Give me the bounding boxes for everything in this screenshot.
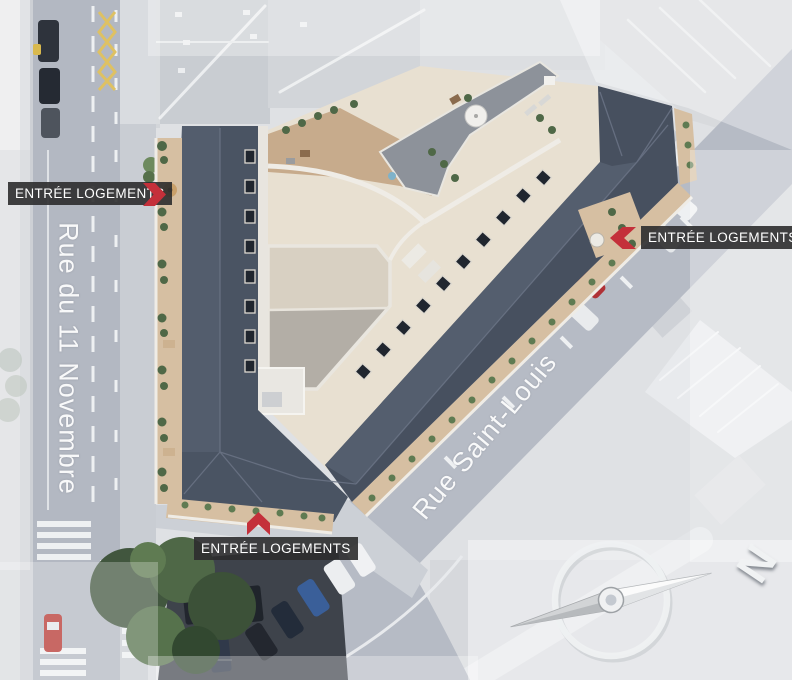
entrance-label-right: ENTRÉE LOGEMENTS xyxy=(641,226,792,249)
street-name-rue-du-11-novembre: Rue du 11 Novembre xyxy=(53,209,84,509)
entrance-label-bottom: ENTRÉE LOGEMENTS xyxy=(194,537,358,560)
aerial-scene xyxy=(0,0,792,680)
site-plan-view: ENTRÉE LOGEMENTS ENTRÉE LOGEMENTS ENTRÉE… xyxy=(0,0,792,680)
